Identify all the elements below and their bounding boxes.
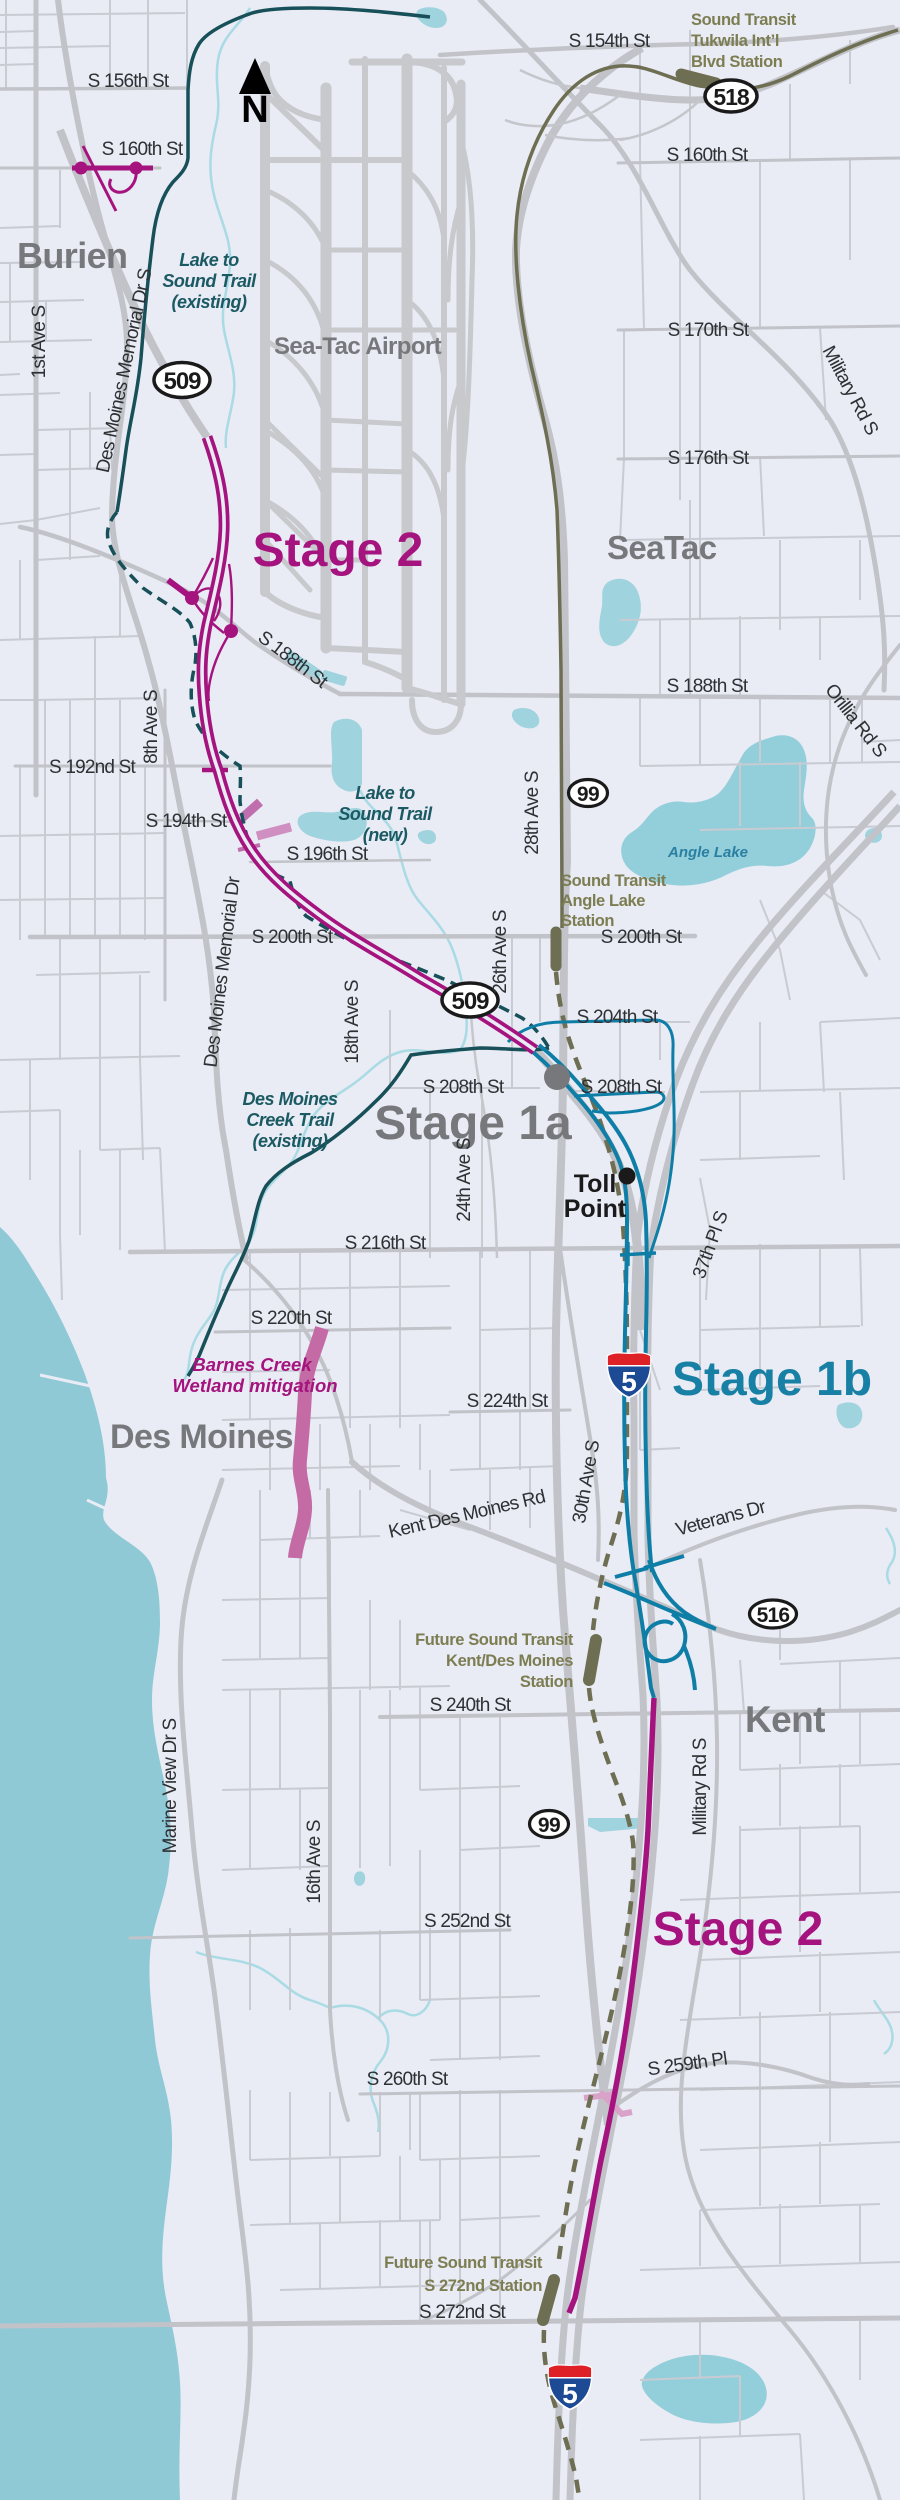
svg-text:N: N <box>241 89 268 131</box>
svg-text:S 208th St: S 208th St <box>423 1077 505 1098</box>
svg-text:S 170th St: S 170th St <box>668 320 750 341</box>
svg-text:S 200th St: S 200th St <box>252 927 334 948</box>
svg-text:Kent/Des Moines: Kent/Des Moines <box>446 1652 573 1670</box>
svg-text:Blvd Station: Blvd Station <box>691 53 783 71</box>
svg-text:Tukwila Int’l: Tukwila Int’l <box>691 32 779 50</box>
svg-text:Sound Trail: Sound Trail <box>338 804 433 824</box>
svg-text:S 188th St: S 188th St <box>667 676 749 697</box>
svg-text:S 156th St: S 156th St <box>88 71 170 92</box>
svg-text:Lake to: Lake to <box>179 250 239 270</box>
svg-text:8th Ave S: 8th Ave S <box>141 690 162 764</box>
svg-text:Burien: Burien <box>17 235 127 276</box>
svg-text:S 176th St: S 176th St <box>668 448 750 469</box>
svg-text:S 204th St: S 204th St <box>577 1007 659 1028</box>
svg-text:Future Sound Transit: Future Sound Transit <box>384 2254 543 2272</box>
svg-text:Kent: Kent <box>745 1699 825 1740</box>
svg-text:509: 509 <box>163 368 201 395</box>
svg-text:S 160th St: S 160th St <box>667 145 749 166</box>
svg-text:Toll: Toll <box>574 1170 617 1198</box>
svg-text:Military Rd S: Military Rd S <box>690 1738 711 1835</box>
svg-text:S 154th St: S 154th St <box>569 31 651 52</box>
svg-text:99: 99 <box>538 1814 560 1837</box>
svg-text:S 220th St: S 220th St <box>251 1308 333 1329</box>
svg-text:Barnes Creek: Barnes Creek <box>192 1354 313 1375</box>
svg-text:S 200th St: S 200th St <box>601 927 683 948</box>
svg-text:Angle Lake: Angle Lake <box>561 892 645 910</box>
svg-text:Point: Point <box>564 1195 627 1223</box>
svg-text:24th Ave S: 24th Ave S <box>454 1138 475 1222</box>
svg-text:S 160th St: S 160th St <box>102 139 184 160</box>
svg-text:(new): (new) <box>363 825 408 845</box>
svg-text:Sound Transit: Sound Transit <box>561 872 667 890</box>
svg-text:509: 509 <box>451 988 489 1015</box>
svg-text:S 224th St: S 224th St <box>467 1391 549 1412</box>
svg-text:(existing): (existing) <box>252 1131 328 1151</box>
svg-text:S 272nd St: S 272nd St <box>419 2302 507 2323</box>
svg-text:5: 5 <box>562 2378 578 2409</box>
svg-text:S 272nd Station: S 272nd Station <box>424 2277 542 2295</box>
svg-text:Station: Station <box>520 1673 573 1691</box>
svg-text:S 196th St: S 196th St <box>287 844 369 865</box>
svg-text:5: 5 <box>621 1366 637 1397</box>
svg-text:S 260th St: S 260th St <box>367 2069 449 2090</box>
svg-text:Marine View Dr S: Marine View Dr S <box>160 1719 181 1854</box>
svg-text:26th Ave S: 26th Ave S <box>490 910 511 994</box>
svg-text:Station: Station <box>561 912 614 930</box>
svg-text:516: 516 <box>757 1604 790 1627</box>
svg-text:S 216th St: S 216th St <box>345 1233 427 1254</box>
svg-text:Future Sound Transit: Future Sound Transit <box>415 1631 574 1649</box>
svg-text:Stage 2: Stage 2 <box>653 1903 824 1956</box>
svg-text:S 252nd St: S 252nd St <box>424 1911 512 1932</box>
svg-text:Des Moines: Des Moines <box>110 1418 293 1456</box>
svg-text:Creek Trail: Creek Trail <box>246 1110 335 1130</box>
svg-text:SeaTac: SeaTac <box>607 529 717 566</box>
svg-text:S 240th St: S 240th St <box>430 1695 512 1716</box>
svg-text:Angle Lake: Angle Lake <box>667 844 748 861</box>
svg-text:28th Ave S: 28th Ave S <box>522 771 543 855</box>
svg-text:16th Ave S: 16th Ave S <box>304 1820 325 1904</box>
svg-text:S 192nd St: S 192nd St <box>49 757 137 778</box>
svg-text:Wetland mitigation: Wetland mitigation <box>172 1375 337 1396</box>
svg-text:99: 99 <box>577 783 599 806</box>
svg-text:Sound Transit: Sound Transit <box>691 11 797 29</box>
svg-text:S 208th St: S 208th St <box>581 1077 663 1098</box>
svg-text:Stage 1b: Stage 1b <box>672 1353 872 1406</box>
svg-text:Sound Trail: Sound Trail <box>162 271 257 291</box>
svg-text:(existing): (existing) <box>171 292 247 312</box>
svg-text:Lake to: Lake to <box>355 783 415 803</box>
svg-text:S 194th St: S 194th St <box>146 811 228 832</box>
svg-text:Stage 2: Stage 2 <box>253 524 424 577</box>
svg-text:Des Moines: Des Moines <box>242 1089 338 1109</box>
svg-text:518: 518 <box>713 84 750 110</box>
svg-text:1st Ave S: 1st Ave S <box>29 306 50 379</box>
svg-text:18th Ave S: 18th Ave S <box>342 980 363 1064</box>
svg-text:Sea-Tac Airport: Sea-Tac Airport <box>274 333 442 360</box>
